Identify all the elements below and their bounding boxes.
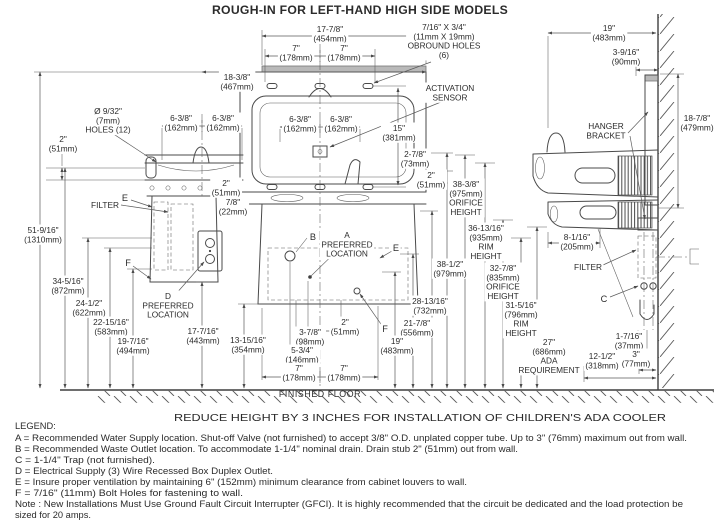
wall-section [658,14,675,390]
dim-width-17-7-8: 17-7/8"(454mm) [313,24,346,43]
finished-floor-label: FINISHED FLOOR [279,389,361,399]
legend-item-a: A = Recommended Water Supply location. S… [15,433,687,443]
rough-in-drawing-page: ROUGH-IN FOR LEFT-HAND HIGH SIDE MODELS [0,0,720,531]
filter-cartridge-right [638,236,656,278]
legend-note-line1: Note : New Installations Must Use Ground… [15,499,683,509]
label-filter-left: FILTER [91,200,119,210]
legend-item-e: E = Insure proper ventilation by maintai… [15,477,467,487]
lower-arm-slot [580,206,616,219]
reduce-height-note: REDUCE HEIGHT BY 3 INCHES FOR INSTALLATI… [174,413,666,424]
wall-hatch [659,14,675,388]
bolt-hole-f [354,288,360,294]
dim-8-1-16: 8-1/16"(205mm) [560,232,593,251]
legend-item-f: F = 7/16" (11mm) Bolt Holes for fastenin… [15,488,243,498]
waste-outlet-b [285,251,295,261]
dim-18-3-8: 18-3/8"(467mm) [220,72,253,91]
legend-heading: LEGEND: [15,421,56,431]
callout-e-left: E [122,193,128,203]
dim-21-7-8: 21-7/8"(556mm) [400,318,433,337]
callout-c: C [601,294,608,304]
label-activation-sensor: ACTIVATIONSENSOR [426,83,475,102]
dim-1-7-16: 1-7/16"(37mm) [615,331,644,350]
upper-arm-slot [575,168,615,183]
leader-lines [112,62,648,327]
dim-28-13-16: 28-13/16"(732mm) [412,296,448,315]
dim-2-7-8: 2-7/8"(73mm) [401,149,430,168]
page-title: ROUGH-IN FOR LEFT-HAND HIGH SIDE MODELS [212,3,508,17]
finished-floor [60,390,714,403]
dim-rim-height-low: 31-5/16"(796mm)RIMHEIGHT [504,300,537,338]
trap [640,300,654,320]
floor-hatch [95,391,714,403]
callout-e-right: E [393,243,399,253]
legend: LEGEND: A = Recommended Water Supply loc… [15,421,687,520]
legend-item-b: B = Recommended Waste Outlet location. T… [15,444,518,454]
dim-38-1-2: 38-1/2"(979mm) [433,259,466,278]
dim-17-7-16: 17-7/16"(443mm) [186,326,219,345]
legend-note-line2: sized for 20 amps. [15,510,91,520]
dim-orifice-height-low: 32-7/8"(835mm)ORIFICEHEIGHT [486,263,520,301]
louver-left [154,202,168,270]
dim-22-15-16: 22-15/16"(583mm) [93,317,129,336]
bubbler-side-upper [547,133,565,152]
dim-51-9-16: 51-9/16"(1310mm) [24,225,62,244]
dim-13-15-16: 13-15/16"(354mm) [230,335,266,354]
dim-19-7-16: 19-7/16"(494mm) [116,336,149,355]
label-filter-right: FILTER [574,262,602,272]
dim-orifice-height-high: 38-3/8"(975mm)ORIFICEHEIGHT [449,179,483,217]
dimension-labels: 17-7/8"(454mm) 7"(178mm) 7"(178mm) 7/16"… [23,22,716,383]
end-cap-left [146,157,156,178]
legend-item-c: C = 1-1/4" Trap (not furnished). [15,455,155,465]
hanger-bracket-top [645,75,658,81]
label-hanger-bracket: HANGERBRACKET [586,121,625,140]
mount-flange [262,66,426,72]
dim-3-7-8: 3-7/8"(98mm) [296,327,325,346]
dim-rim-height-high: 36-13/16"(935mm)RIMHEIGHT [468,223,504,261]
dim-18-7-8: 18-7/8"(479mm) [680,113,713,132]
callout-f-right: F [382,324,388,334]
bubbler-guard [345,160,360,184]
bowl-left [158,165,234,171]
dim-24-1-2: 24-1/2"(622mm) [72,298,105,317]
legend-item-d: D = Electrical Supply (3) Wire Recessed … [15,466,273,476]
filter-cartridge-left [171,204,193,270]
louver-lower [618,202,652,228]
dim-34-5-16: 34-5/16"(872mm) [51,276,84,295]
callout-f-left: F [125,258,131,268]
dim-12-1-2: 12-1/2"(318mm) [585,351,618,370]
dim-3-9-16: 3-9/16"(90mm) [612,47,641,66]
rough-in-diagram: ROUGH-IN FOR LEFT-HAND HIGH SIDE MODELS [0,0,720,531]
callout-b: B [310,232,316,242]
